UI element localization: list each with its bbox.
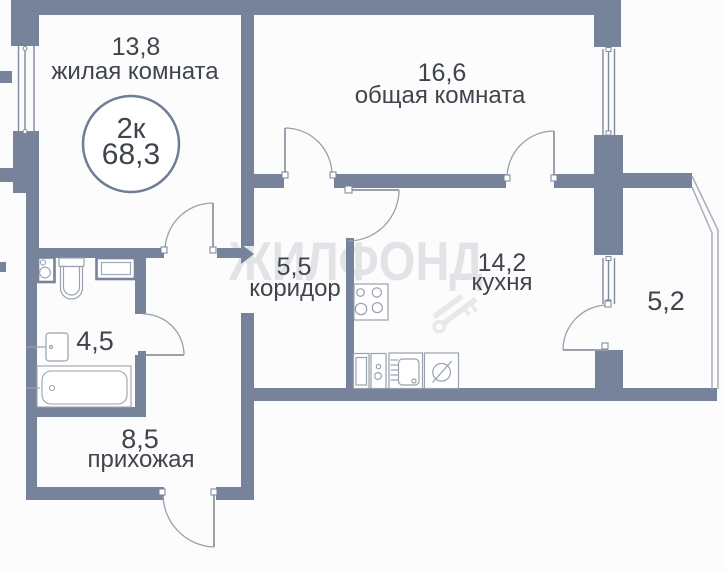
svg-text:13,8: 13,8 <box>112 33 161 61</box>
svg-text:5,2: 5,2 <box>647 286 685 316</box>
svg-text:68,3: 68,3 <box>102 138 160 171</box>
svg-text:коридор: коридор <box>249 275 341 302</box>
svg-text:жилая комната: жилая комната <box>51 58 219 85</box>
svg-text:общая комната: общая комната <box>355 82 526 109</box>
svg-text:4,5: 4,5 <box>76 326 114 356</box>
svg-text:кухня: кухня <box>471 269 532 296</box>
svg-text:прихожая: прихожая <box>88 446 195 473</box>
